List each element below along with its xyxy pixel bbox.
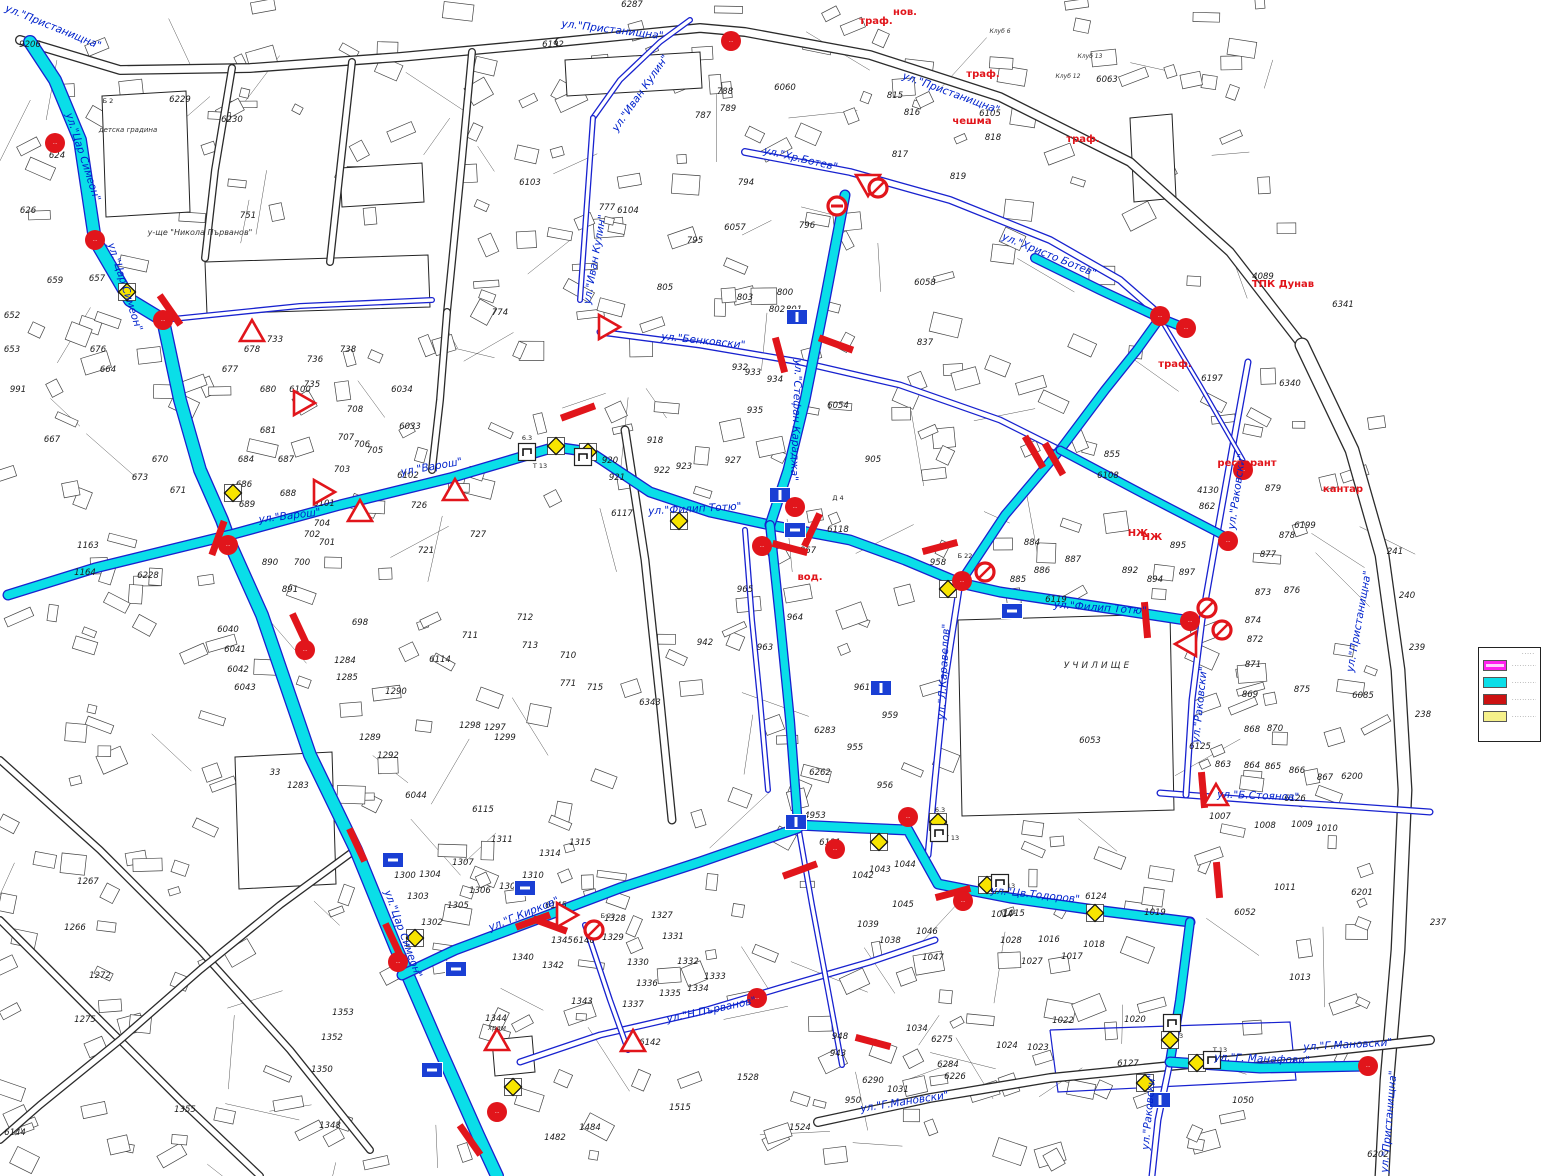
- parcel-number: 701: [319, 538, 335, 548]
- svg-text:···: ···: [396, 960, 401, 966]
- parcel-number: 864: [1244, 761, 1260, 771]
- parcel-number: 905: [865, 455, 881, 465]
- parcel-number: 684: [238, 455, 254, 465]
- parcel-number: 1272: [89, 971, 111, 981]
- parcel-number: 1034: [906, 1024, 928, 1034]
- hydrant-diamond-marker-icon: [505, 1079, 522, 1096]
- parcel-number: 885: [1010, 575, 1026, 585]
- parcel-number: 659: [47, 276, 63, 286]
- parcel-number: 877: [1260, 550, 1277, 560]
- parcel-number: 713: [522, 641, 538, 651]
- parcel-number: 876: [1284, 586, 1301, 596]
- parcel-number: 1335: [659, 989, 681, 999]
- parcel-number: 1009: [1291, 820, 1313, 830]
- parcel-number: 1353: [332, 1008, 354, 1018]
- parcel-number: 1031: [887, 1085, 909, 1095]
- red-node-marker-icon: ···: [218, 535, 238, 555]
- parcel-number: 890: [262, 558, 278, 568]
- no-stopping-sign-icon: [869, 179, 887, 197]
- parcel-number: 866: [1289, 766, 1306, 776]
- parcel-number: 1013: [1289, 973, 1311, 983]
- parcel-number: 1046: [916, 927, 938, 937]
- parcel-number: 1305: [447, 901, 469, 911]
- parcel-number: 653: [4, 345, 20, 355]
- parcel-number: 6053: [1079, 736, 1101, 746]
- parcel-number: 6117: [611, 509, 633, 519]
- blue-sign-icon: [446, 962, 467, 977]
- parcel-number: 934: [767, 375, 783, 385]
- parcel-number: 1342: [542, 961, 564, 971]
- svg-text:···: ···: [1158, 314, 1163, 320]
- parcel-number: 4953: [804, 811, 826, 821]
- parcel-number: 818: [985, 133, 1002, 143]
- parcel-number: 6108: [1097, 471, 1119, 481]
- parcel-number: 892: [1122, 566, 1138, 576]
- parcel-number: 789: [720, 104, 736, 114]
- parcel-number: 6343: [639, 698, 661, 708]
- parcel-number: 894: [1147, 575, 1163, 585]
- parcel-number: 707: [338, 433, 355, 443]
- parcel-number: 727: [470, 530, 487, 540]
- red-annotation-label: траф.: [1066, 133, 1099, 145]
- parcel-number: 1303: [407, 892, 429, 902]
- parcel-number: 1017: [1061, 952, 1083, 962]
- svg-text:···: ···: [1366, 1064, 1371, 1070]
- parcel-number: 1266: [64, 923, 86, 933]
- parcel-number: 1292: [377, 751, 399, 761]
- parcel-number: 721: [418, 546, 434, 556]
- red-annotation-label: ТПК Дунав: [1252, 279, 1314, 290]
- parcel-number: 815: [887, 91, 903, 101]
- parcel-number: 1011: [1274, 883, 1296, 893]
- parcel-number: 935: [747, 406, 763, 416]
- parcel-number: 6085: [1352, 691, 1374, 701]
- parcel-number: 1163: [77, 541, 99, 551]
- red-annotation-label: траф.: [966, 68, 999, 80]
- parcel-number: 862: [1199, 502, 1215, 512]
- parcel-number: 1310: [522, 871, 544, 881]
- svg-text:···: ···: [161, 318, 166, 324]
- parcel-number: 708: [347, 405, 364, 415]
- parcel-number: 1345: [551, 936, 573, 946]
- parcel-number: 855: [1104, 450, 1120, 460]
- parcel-number: 943: [830, 1049, 846, 1059]
- parcel-number: 1344: [485, 1014, 507, 1024]
- parcel-number: 676: [90, 345, 107, 355]
- parcel-number: 6041: [224, 645, 246, 655]
- blue-sign-icon: [770, 488, 791, 503]
- svg-text:···: ···: [1188, 619, 1193, 625]
- parcel-number: 751: [240, 211, 256, 221]
- red-annotation-label: траф.: [859, 15, 892, 27]
- small-label: Б 22: [601, 912, 616, 920]
- parcel-number: 788: [717, 87, 734, 97]
- legend-item-label: ··········: [1512, 697, 1536, 703]
- svg-text:···: ···: [1184, 326, 1189, 332]
- parcel-number: 240: [1399, 591, 1415, 601]
- parcel-number: 1528: [737, 1073, 759, 1083]
- svg-text:···: ···: [226, 543, 231, 549]
- red-annotation-label: вод.: [797, 572, 822, 583]
- parcel-number: 6103: [519, 178, 541, 188]
- legend-item-label: ··········: [1512, 680, 1536, 686]
- parcel-number: 950: [845, 1096, 861, 1106]
- legend-item-legend-magenta: ··········: [1479, 657, 1540, 674]
- svg-text:···: ···: [961, 899, 966, 905]
- parcel-number: 1019: [1144, 908, 1166, 918]
- parcel-number: 6287: [621, 0, 643, 10]
- parcel-number: 1044: [894, 860, 916, 870]
- red-annotation-label: нов.: [893, 7, 917, 18]
- blue-sign-icon: [515, 881, 536, 896]
- blue-sign-icon: [786, 815, 807, 830]
- parcel-number: 9206: [19, 40, 41, 50]
- parcel-number: 1007: [1209, 812, 1231, 822]
- parcel-number: 6033: [399, 422, 421, 432]
- parcel-number: 787: [695, 111, 712, 121]
- red-node-marker-icon: ···: [898, 807, 918, 827]
- red-annotation-label: траф.: [1158, 358, 1191, 370]
- parcel-number: 1299: [494, 733, 516, 743]
- svg-text:···: ···: [729, 39, 734, 45]
- parcel-number: 6124: [1085, 892, 1107, 902]
- black-annotation-label: Клуб 6: [989, 28, 1010, 35]
- black-annotation-label: храм: [487, 1024, 507, 1032]
- parcel-number: 705: [367, 446, 383, 456]
- parcel-number: 802: [769, 305, 785, 315]
- parcel-number: 673: [132, 473, 148, 483]
- small-label: Т 13: [532, 462, 547, 470]
- red-node-marker-icon: ···: [825, 839, 845, 859]
- parcel-number: 6290: [862, 1076, 884, 1086]
- parcel-number: 678: [244, 345, 261, 355]
- svg-text:···: ···: [793, 505, 798, 511]
- parcel-number: 965: [737, 585, 753, 595]
- parcel-number: 6144: [4, 1128, 26, 1138]
- parcel-number: 1018: [1083, 940, 1105, 950]
- parcel-number: 681: [260, 426, 276, 436]
- parcel-number: 6042: [227, 665, 249, 675]
- hydrant-diamond-marker-icon: [548, 438, 565, 455]
- parcel-number: 884: [1024, 538, 1040, 548]
- red-node-marker-icon: ···: [1358, 1056, 1378, 1076]
- parcel-number: 6040: [217, 625, 239, 635]
- parcel-number: 963: [757, 643, 773, 653]
- parcel-number: 6058: [914, 278, 936, 288]
- parcel-number: 1524: [789, 1123, 811, 1133]
- parcel-number: 738: [340, 345, 357, 355]
- parcel-number: 687: [278, 455, 295, 465]
- parcel-number: 6104: [617, 206, 639, 216]
- parcel-number: 863: [1215, 760, 1231, 770]
- parcel-number: 1015: [1003, 909, 1025, 919]
- red-annotation-label: НЖ: [1142, 532, 1163, 543]
- parcel-number: 1307: [452, 858, 474, 868]
- parcel-number: 6275: [931, 1035, 953, 1045]
- parcel-number: 948: [832, 1032, 849, 1042]
- parcel-number: 1023: [1027, 1043, 1049, 1053]
- parcel-number: 237: [1430, 918, 1447, 928]
- parcel-number: 239: [1409, 643, 1425, 653]
- svg-text:···: ···: [760, 544, 765, 550]
- parcel-number: 1348: [319, 1121, 341, 1131]
- parcel-number: 626: [20, 206, 37, 216]
- parcel-number: 704: [314, 519, 330, 529]
- parcel-number: 795: [687, 236, 703, 246]
- parcel-number: 698: [352, 618, 369, 628]
- parcel-number: 886: [1034, 566, 1051, 576]
- legend-item-legend-red: ··········: [1479, 691, 1540, 708]
- svg-text:···: ···: [833, 847, 838, 853]
- blue-sign-icon: [785, 523, 806, 538]
- parcel-number: 1333: [704, 972, 726, 982]
- parcel-number: 1352: [321, 1033, 343, 1043]
- parcel-number: 712: [517, 613, 533, 623]
- parcel-number: 1010: [1316, 824, 1338, 834]
- legend-item-legend-yellow: ··········: [1479, 708, 1540, 725]
- parcel-number: 6340: [1279, 379, 1301, 389]
- parcel-number: 1306: [469, 886, 491, 896]
- black-annotation-label: УЧИЛИЩЕ: [1064, 661, 1132, 671]
- parcel-number: 895: [1170, 541, 1186, 551]
- parcel-number: 1267: [77, 877, 99, 887]
- parcel-number: 1355: [174, 1105, 196, 1115]
- parcel-number: 1484: [579, 1123, 601, 1133]
- parcel-number: 1045: [892, 900, 914, 910]
- valve-marker-icon: [575, 449, 592, 466]
- parcel-number: 680: [260, 385, 276, 395]
- hydrant-diamond-marker-icon: [871, 834, 888, 851]
- parcel-number: 1050: [1232, 1096, 1254, 1106]
- parcel-number: 6115: [472, 805, 494, 815]
- parcel-number: 874: [1245, 616, 1261, 626]
- parcel-number: 1329: [602, 933, 624, 943]
- no-stopping-sign-icon: [1213, 621, 1231, 639]
- red-node-marker-icon: ···: [785, 497, 805, 517]
- parcel-number: 6114: [429, 655, 451, 665]
- parcel-number: 6118: [827, 525, 849, 535]
- parcel-number: 6127: [1117, 1059, 1139, 1069]
- parcel-number: 6044: [405, 791, 427, 801]
- svg-text:···: ···: [906, 815, 911, 821]
- parcel-number: 955: [847, 743, 863, 753]
- parcel-number: 1042: [852, 871, 874, 881]
- parcel-number: 805: [657, 283, 673, 293]
- small-label: Б 22: [958, 552, 973, 560]
- parcel-number: 1024: [996, 1041, 1018, 1051]
- parcel-number: 6054: [827, 401, 849, 411]
- parcel-number: 33: [270, 768, 281, 778]
- legend-item-label: ··········: [1512, 663, 1536, 669]
- black-annotation-label: Клуб 12: [1056, 73, 1081, 80]
- parcel-number: 1047: [922, 953, 944, 963]
- legend-red-swatch-icon: [1483, 694, 1507, 705]
- red-node-marker-icon: ···: [1176, 318, 1196, 338]
- parcel-number: 6052: [1234, 908, 1256, 918]
- parcel-number: 1283: [287, 781, 309, 791]
- parcel-number: 871: [1245, 660, 1261, 670]
- no-entry-sign-icon: [828, 197, 846, 215]
- blue-sign-icon: [383, 853, 404, 868]
- parcel-number: 6199: [1294, 521, 1316, 531]
- parcel-number: 6201: [1351, 888, 1373, 898]
- parcel-number: 700: [294, 558, 310, 568]
- parcel-number: 1016: [1038, 935, 1060, 945]
- parcel-number: 1289: [359, 733, 381, 743]
- parcel-number: 920: [602, 456, 618, 466]
- parcel-number: 726: [411, 501, 428, 511]
- parcel-number: 794: [738, 178, 754, 188]
- parcel-number: 1285: [336, 673, 358, 683]
- black-annotation-label: у-ще "Никола Първанов": [147, 228, 253, 237]
- red-annotation-label: ресторант: [1217, 458, 1276, 469]
- valve-marker-icon: [931, 825, 948, 842]
- parcel-number: 887: [1065, 555, 1082, 565]
- parcel-number: 733: [267, 335, 283, 345]
- red-node-marker-icon: ···: [952, 571, 972, 591]
- parcel-number: 1290: [385, 687, 407, 697]
- parcel-number: 878: [1279, 531, 1296, 541]
- valve-marker-icon: [519, 444, 536, 461]
- parcel-number: 6043: [234, 683, 256, 693]
- parcel-number: 1275: [74, 1015, 96, 1025]
- parcel-number: 1038: [879, 936, 901, 946]
- parcel-number: 6057: [724, 223, 746, 233]
- blue-sign-icon: [871, 681, 892, 696]
- parcel-number: 873: [1255, 588, 1271, 598]
- parcel-number: 1297: [484, 723, 506, 733]
- parcel-number: 657: [89, 274, 106, 284]
- parcel-number: 923: [676, 462, 692, 472]
- parcel-number: 964: [787, 613, 803, 623]
- parcel-number: 6228: [137, 571, 159, 581]
- parcel-number: 1315: [569, 838, 591, 848]
- parcel-number: 703: [334, 465, 350, 475]
- parcel-number: 710: [560, 651, 576, 661]
- parcel-number: 1298: [459, 721, 481, 731]
- red-node-marker-icon: ···: [1150, 306, 1170, 326]
- parcel-number: 4130: [1197, 486, 1219, 496]
- parcel-number: 664: [100, 365, 116, 375]
- svg-text:···: ···: [960, 579, 965, 585]
- parcel-number: 1343: [571, 997, 593, 1007]
- parcel-number: 670: [152, 455, 168, 465]
- parcel-number: 6230: [221, 115, 243, 125]
- parcel-number: 677: [222, 365, 239, 375]
- red-annotation-label: чешма: [952, 116, 991, 127]
- parcel-number: 715: [587, 683, 603, 693]
- map-canvas: 9206619262296230624751626657659652653676…: [0, 0, 1541, 1176]
- parcel-number: 933: [745, 368, 761, 378]
- red-node-marker-icon: ···: [953, 891, 973, 911]
- red-node-marker-icon: ···: [1180, 611, 1200, 631]
- parcel-number: 711: [462, 631, 478, 641]
- hydrant-diamond-marker-icon: [225, 485, 242, 502]
- hydrant-diamond-marker-icon: [1087, 905, 1104, 922]
- blue-sign-icon: [787, 310, 808, 325]
- parcel-number: 774: [492, 308, 508, 318]
- parcel-number: 652: [4, 311, 20, 321]
- parcel-number: 958: [930, 558, 947, 568]
- legend-item-label: ··········: [1512, 714, 1536, 720]
- parcel-number: 1311: [491, 835, 513, 845]
- parcel-number: 702: [304, 530, 320, 540]
- red-node-marker-icon: ···: [45, 133, 65, 153]
- small-label: 6.3: [935, 806, 945, 814]
- parcel-number: 6284: [937, 1060, 959, 1070]
- parcel-number: 6034: [391, 385, 413, 395]
- red-node-marker-icon: ···: [153, 310, 173, 330]
- parcel-number: 891: [282, 585, 298, 595]
- parcel-number: 1284: [334, 656, 356, 666]
- parcel-number: 927: [725, 456, 742, 466]
- red-node-marker-icon: ···: [487, 1102, 507, 1122]
- parcel-number: 869: [1242, 690, 1258, 700]
- parcel-number: 6063: [1096, 75, 1118, 85]
- parcel-number: 1304: [419, 870, 441, 880]
- no-stopping-sign-icon: [976, 563, 994, 581]
- parcel-number: 816: [904, 108, 921, 118]
- legend-magenta-swatch-icon: [1483, 660, 1507, 671]
- small-label: 6.3: [522, 434, 532, 442]
- parcel-number: 1336: [636, 979, 658, 989]
- parcel-number: 1302: [421, 918, 443, 928]
- small-label: Д 4: [832, 494, 843, 502]
- parcel-number: 867: [1317, 773, 1334, 783]
- parcel-number: 956: [877, 781, 894, 791]
- parcel-number: 897: [1179, 568, 1196, 578]
- parcel-number: 961: [854, 683, 870, 693]
- parcel-number: 6200: [1341, 772, 1363, 782]
- legend-title: ·····: [1479, 648, 1540, 657]
- parcel-number: 1334: [687, 984, 709, 994]
- svg-text:···: ···: [1226, 539, 1231, 545]
- red-node-marker-icon: ···: [721, 31, 741, 51]
- red-node-marker-icon: ···: [752, 536, 772, 556]
- svg-text:···: ···: [303, 648, 308, 654]
- parcel-number: 671: [170, 486, 186, 496]
- no-stopping-sign-icon: [585, 921, 603, 939]
- parcel-number: 1337: [622, 1000, 644, 1010]
- parcel-number: 6262: [809, 768, 831, 778]
- black-annotation-label: Клуб 13: [1078, 53, 1103, 60]
- svg-text:···: ···: [495, 1110, 500, 1116]
- parcel-number: 6226: [944, 1072, 966, 1082]
- svg-text:···: ···: [53, 141, 58, 147]
- parcel-number: 870: [1267, 724, 1283, 734]
- hydrant-diamond-marker-icon: [1162, 1032, 1179, 1049]
- parcel-number: 6229: [169, 95, 191, 105]
- red-annotation-label: кантар: [1323, 484, 1363, 495]
- parcel-number: 837: [917, 338, 934, 348]
- valve-marker-icon: [1164, 1015, 1181, 1032]
- parcel-number: 1340: [512, 953, 534, 963]
- parcel-number: 819: [950, 172, 966, 182]
- small-label: Б 2: [103, 97, 114, 105]
- parcel-number: 918: [647, 436, 664, 446]
- parcel-number: 6197: [1201, 374, 1223, 384]
- parcel-number: 800: [777, 288, 793, 298]
- legend-cyan-swatch-icon: [1483, 677, 1507, 688]
- parcel-number: 238: [1415, 710, 1432, 720]
- parcel-number: 1330: [627, 958, 649, 968]
- parcel-number: 1515: [669, 1103, 691, 1113]
- parcel-number: 241: [1387, 547, 1403, 557]
- parcel-number: 1300: [394, 871, 416, 881]
- parcel-number: 6060: [774, 83, 796, 93]
- parcel-number: 817: [892, 150, 909, 160]
- parcel-number: 6283: [814, 726, 836, 736]
